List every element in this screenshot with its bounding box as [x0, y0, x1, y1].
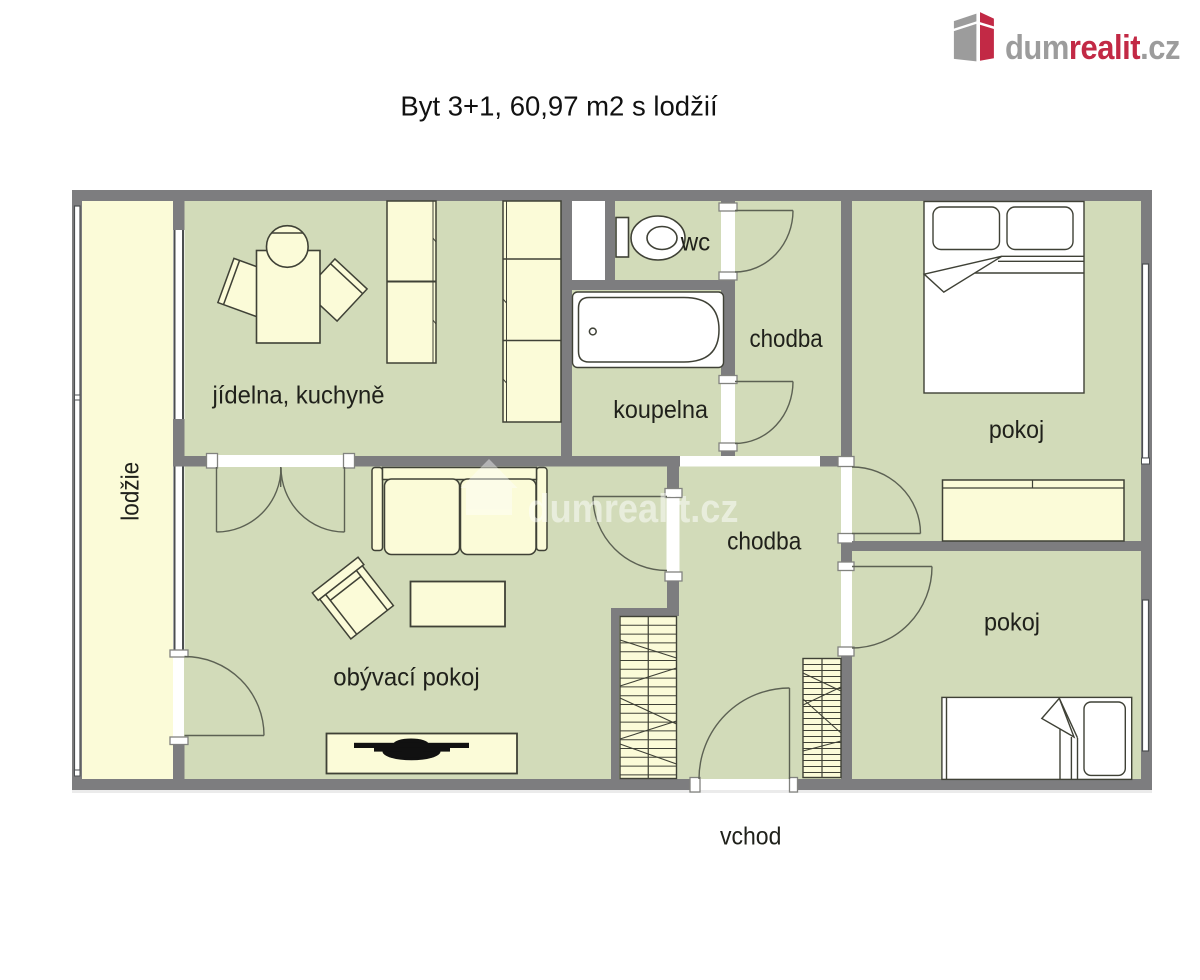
svg-text:dumrealit.cz: dumrealit.cz	[1005, 29, 1180, 67]
svg-text:pokoj: pokoj	[984, 609, 1040, 637]
svg-text:jídelna, kuchyně: jídelna, kuchyně	[212, 382, 385, 410]
svg-text:Byt 3+1, 60,97 m2 s lodžií: Byt 3+1, 60,97 m2 s lodžií	[400, 91, 718, 122]
svg-text:koupelna: koupelna	[613, 396, 708, 424]
svg-text:vchod: vchod	[720, 822, 781, 850]
svg-text:pokoj: pokoj	[989, 416, 1044, 444]
svg-text:wc: wc	[680, 229, 710, 257]
svg-text:dumrealit.cz: dumrealit.cz	[528, 487, 739, 531]
svg-text:lodžie: lodžie	[117, 462, 145, 521]
svg-text:chodba: chodba	[727, 528, 801, 556]
svg-text:obývací pokoj: obývací pokoj	[333, 664, 479, 692]
svg-text:chodba: chodba	[750, 325, 823, 353]
